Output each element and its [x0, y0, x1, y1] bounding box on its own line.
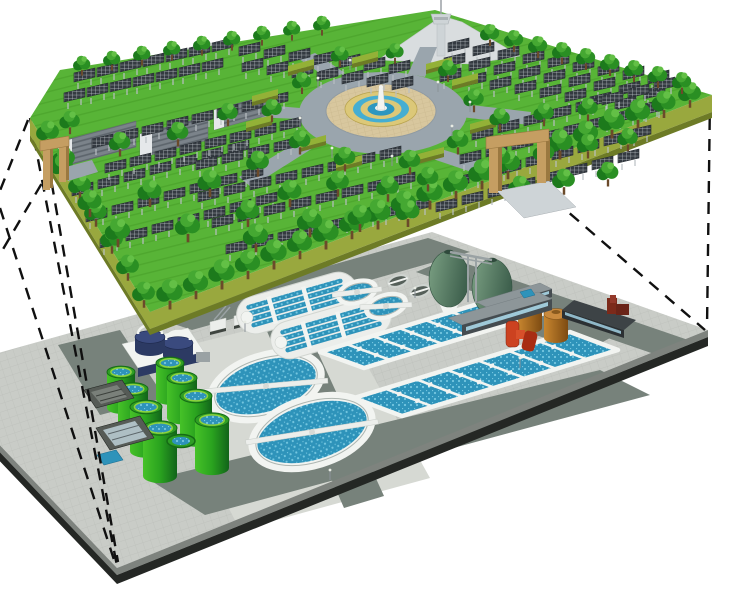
pump-block: [196, 352, 210, 362]
tank-body: [195, 420, 229, 475]
tank-water-top: [200, 415, 224, 425]
projection-dashed-line: [707, 97, 710, 328]
tank-water-top: [171, 373, 193, 382]
red-transformer-boxes: [607, 295, 629, 315]
tank-water-top: [111, 368, 131, 376]
tank-water-top: [148, 423, 172, 433]
egg-digester: [429, 251, 469, 307]
underground-wwtp-cutaway-illustration: Cutaway 3D illustration: underground was…: [0, 0, 740, 589]
lower-level: [0, 232, 708, 584]
illustration-canvas: Cutaway 3D illustration: underground was…: [0, 0, 740, 589]
tank-water-top: [134, 402, 157, 412]
tank-water-top: [160, 359, 180, 367]
tank-water-top: [184, 391, 207, 401]
green-sludge-tank: [195, 413, 229, 475]
low-round-tank: [167, 435, 195, 448]
projection-dashed-line: [0, 120, 28, 226]
